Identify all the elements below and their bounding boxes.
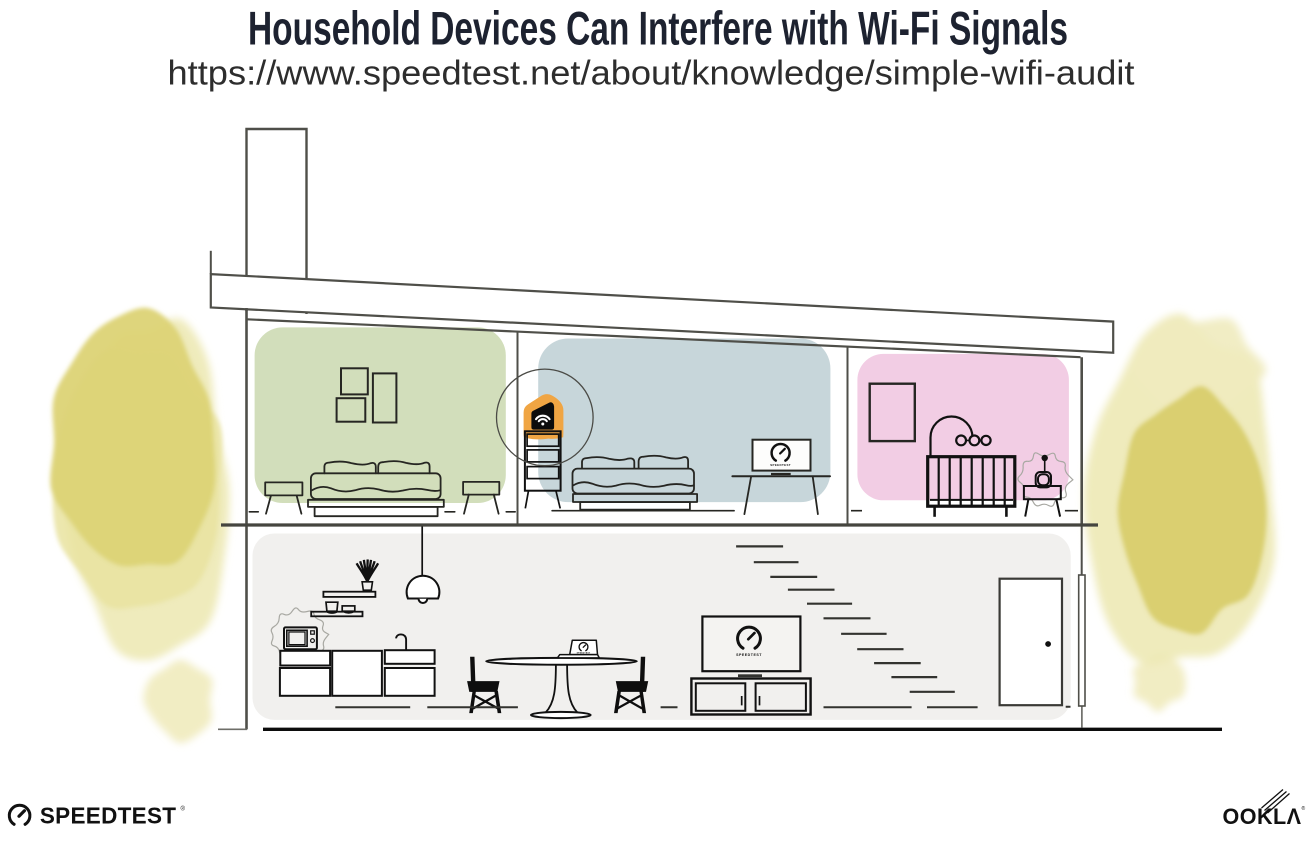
svg-text:®: ® (181, 806, 186, 813)
svg-text:SPEEDTEST: SPEEDTEST (577, 653, 591, 655)
svg-text:Household Devices Can Interfer: Household Devices Can Interfere with Wi-… (248, 2, 1068, 55)
svg-text:https://www.speedtest.net/abou: https://www.speedtest.net/about/knowledg… (168, 55, 1135, 93)
svg-text:SPEEDTEST: SPEEDTEST (770, 463, 791, 467)
svg-text:®: ® (1302, 805, 1306, 812)
svg-text:SPEEDTEST: SPEEDTEST (40, 802, 176, 828)
svg-text:SPEEDTEST: SPEEDTEST (736, 653, 762, 657)
